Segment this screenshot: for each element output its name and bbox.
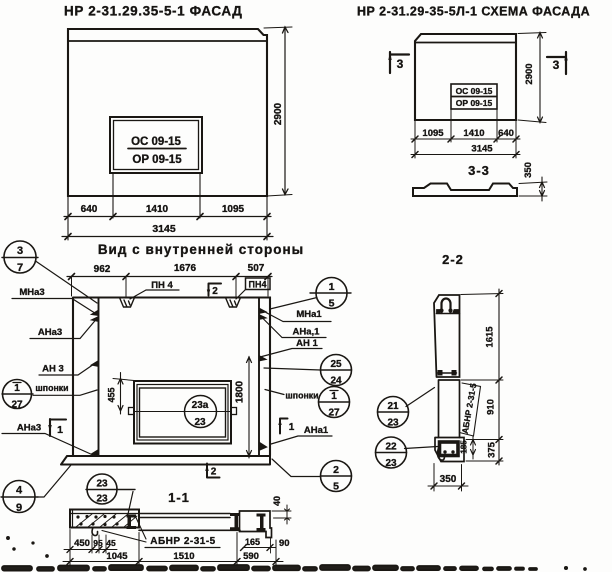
svg-text:1045: 1045 — [106, 551, 128, 562]
svg-text:23: 23 — [387, 418, 399, 429]
svg-text:1800: 1800 — [235, 380, 246, 403]
svg-text:455: 455 — [107, 387, 117, 402]
svg-text:АБНР 2-31-5: АБНР 2-31-5 — [150, 536, 216, 547]
svg-text:ОР 09-15: ОР 09-15 — [456, 98, 493, 108]
svg-text:2: 2 — [211, 467, 217, 478]
svg-text:5: 5 — [333, 481, 339, 493]
svg-text:1410: 1410 — [463, 128, 484, 139]
svg-text:АБНР 2-31-5: АБНР 2-31-5 — [460, 382, 479, 434]
svg-text:шпонки: шпонки — [35, 383, 68, 393]
svg-text:МНа3: МНа3 — [19, 287, 44, 298]
svg-text:1: 1 — [331, 391, 337, 402]
svg-text:3145: 3145 — [471, 144, 493, 155]
svg-text:1: 1 — [14, 383, 20, 394]
svg-text:910: 910 — [486, 399, 497, 415]
svg-text:640: 640 — [498, 128, 514, 139]
svg-text:ПН 4: ПН 4 — [151, 280, 173, 291]
svg-text:962: 962 — [94, 264, 111, 275]
svg-text:Вид с внутренней стороны: Вид с внутренней стороны — [98, 242, 304, 257]
svg-text:23: 23 — [96, 479, 108, 490]
svg-text:23а: 23а — [192, 400, 209, 411]
svg-text:185: 185 — [460, 440, 469, 454]
svg-text:24: 24 — [330, 376, 342, 387]
svg-text:1510: 1510 — [173, 551, 194, 562]
svg-text:3: 3 — [553, 58, 560, 72]
svg-text:АНа3: АНа3 — [17, 423, 41, 434]
svg-text:375: 375 — [487, 441, 498, 458]
svg-text:3: 3 — [397, 57, 404, 71]
svg-text:350: 350 — [440, 474, 457, 485]
svg-text:23: 23 — [194, 417, 206, 428]
svg-text:45: 45 — [106, 538, 116, 548]
svg-text:5: 5 — [329, 298, 335, 310]
svg-text:АНа3: АНа3 — [38, 327, 62, 338]
svg-text:9: 9 — [16, 502, 22, 514]
svg-text:3145: 3145 — [152, 223, 176, 235]
svg-text:1095: 1095 — [422, 128, 444, 139]
svg-text:НР 2-31.29.35-5-1 ФАСАД: НР 2-31.29.35-5-1 ФАСАД — [64, 4, 243, 19]
svg-text:27: 27 — [328, 408, 340, 419]
svg-text:шпонки: шпонки — [285, 391, 318, 401]
svg-text:22: 22 — [385, 442, 397, 453]
svg-text:1: 1 — [57, 424, 63, 436]
svg-text:27: 27 — [11, 400, 23, 411]
svg-text:ПН4: ПН4 — [249, 280, 267, 290]
svg-text:1410: 1410 — [146, 204, 169, 215]
svg-text:21: 21 — [387, 401, 399, 412]
svg-text:МНа1: МНа1 — [296, 309, 322, 320]
svg-text:590: 590 — [243, 551, 259, 562]
svg-text:90: 90 — [279, 538, 290, 549]
svg-text:АН 1: АН 1 — [296, 338, 318, 349]
svg-text:1-1: 1-1 — [168, 490, 190, 505]
svg-text:1615: 1615 — [485, 326, 496, 348]
svg-text:40: 40 — [272, 496, 282, 506]
svg-text:2-2: 2-2 — [442, 252, 464, 267]
svg-text:450: 450 — [74, 538, 90, 549]
svg-text:АНа1: АНа1 — [304, 425, 329, 436]
svg-text:ОС 09-15: ОС 09-15 — [456, 86, 493, 96]
svg-text:3-3: 3-3 — [468, 163, 490, 178]
svg-text:640: 640 — [81, 204, 98, 215]
svg-text:165: 165 — [245, 537, 260, 547]
svg-text:2: 2 — [333, 464, 339, 476]
svg-text:1: 1 — [329, 281, 335, 293]
svg-text:2900: 2900 — [273, 102, 284, 125]
svg-text:350: 350 — [523, 162, 534, 178]
svg-text:507: 507 — [248, 263, 265, 274]
svg-text:1676: 1676 — [174, 263, 197, 274]
svg-text:2900: 2900 — [524, 63, 535, 84]
svg-text:НР 2-31.29-35-5Л-1 СХЕМА ФАСАД: НР 2-31.29-35-5Л-1 СХЕМА ФАСАДА — [357, 5, 590, 19]
svg-text:ОС 09-15: ОС 09-15 — [131, 136, 181, 148]
svg-text:1095: 1095 — [222, 204, 245, 215]
svg-text:3: 3 — [17, 245, 23, 257]
svg-text:АН 3: АН 3 — [42, 364, 64, 375]
svg-text:2: 2 — [212, 286, 218, 297]
svg-text:1: 1 — [289, 422, 295, 433]
svg-text:23: 23 — [385, 458, 397, 469]
svg-text:4: 4 — [16, 485, 23, 497]
svg-text:23: 23 — [96, 494, 108, 505]
svg-text:7: 7 — [17, 262, 23, 274]
svg-text:25: 25 — [330, 359, 342, 370]
svg-text:ОР 09-15: ОР 09-15 — [132, 154, 182, 166]
svg-text:АНа,1: АНа,1 — [293, 327, 321, 338]
